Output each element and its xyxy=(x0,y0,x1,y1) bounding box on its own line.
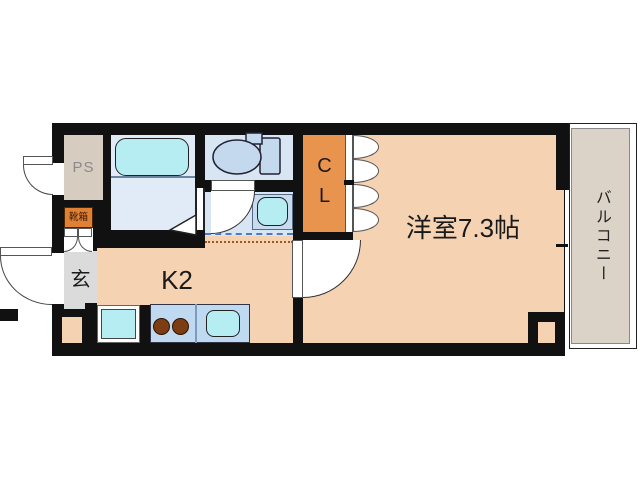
meter-box-door-leaf xyxy=(23,156,53,165)
shoe-box-label: 靴箱 xyxy=(69,213,88,223)
pipe-space-label: PS xyxy=(72,160,94,176)
window-center-tick xyxy=(556,244,568,247)
washbasin-icon xyxy=(257,197,288,226)
toilet-door-leaf xyxy=(211,180,255,191)
floorplan-canvas: PS 玄 xyxy=(0,0,640,480)
shoe-box-door-leaf xyxy=(78,228,92,237)
closet-label: CL xyxy=(314,155,335,215)
entrance-label: 玄 xyxy=(71,270,91,291)
laundry-left-wall xyxy=(85,303,97,343)
washroom-boundary-dashed-line xyxy=(205,233,293,235)
front-door-gap xyxy=(52,253,64,304)
main-room-label: 洋室7.3帖 xyxy=(363,215,563,242)
stove-burner-icon xyxy=(172,318,189,335)
washing-machine-tub xyxy=(101,309,136,339)
room-entrance: 玄 xyxy=(64,251,97,309)
laundry-right-wall xyxy=(140,305,150,343)
stove-burner-icon xyxy=(153,318,170,335)
bathroom-door-icon xyxy=(166,212,200,238)
closet-door-mid-tick xyxy=(344,180,354,185)
kitchen-dotted-line xyxy=(205,241,293,243)
exterior-wall-stub xyxy=(0,309,18,321)
main-room-door-leaf xyxy=(292,240,303,298)
right-wall-upper xyxy=(556,123,570,190)
kitchen-sink-icon xyxy=(206,310,240,337)
front-door-swing-arc xyxy=(0,256,52,305)
bathtub-icon xyxy=(115,138,189,176)
counter-divider xyxy=(195,304,197,343)
meter-box-door-gap xyxy=(52,163,64,195)
kitchen-label: K2 xyxy=(127,267,227,294)
shoe-box-door-leaf xyxy=(64,228,78,237)
washing-machine-icon xyxy=(97,305,140,343)
shoe-box: 靴箱 xyxy=(64,207,93,228)
corner-pillar-core xyxy=(538,322,555,343)
room-pipe-space: PS xyxy=(64,135,103,200)
bathtub-ledge-line xyxy=(111,176,195,178)
washroom-corner-wall xyxy=(93,228,111,248)
room-balcony: バルコニー xyxy=(571,128,630,344)
front-door-leaf xyxy=(0,247,52,256)
meter-box-door-swing-arc xyxy=(23,165,53,195)
toilet-icon xyxy=(210,132,290,178)
closet-label-box: CL xyxy=(303,146,345,224)
balcony-label: バルコニー xyxy=(592,189,609,284)
entrance-niche xyxy=(62,317,82,343)
